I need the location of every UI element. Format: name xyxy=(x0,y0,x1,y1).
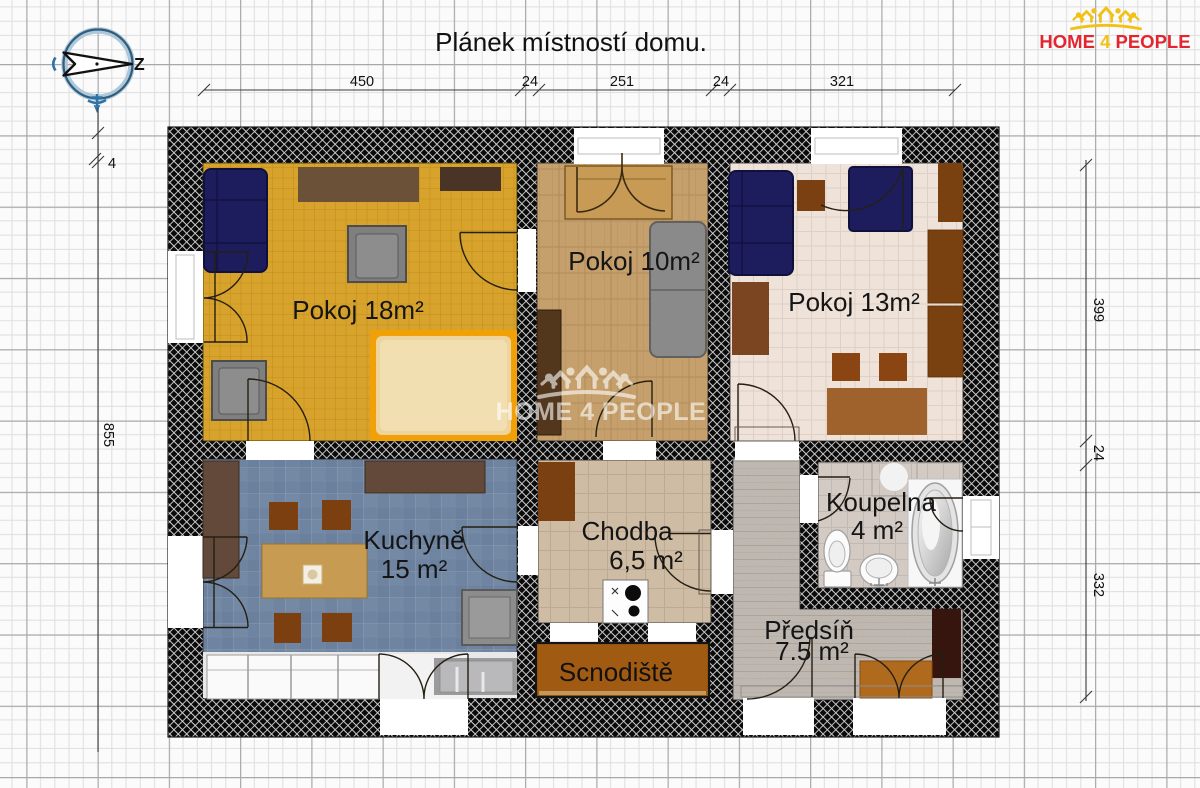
svg-text:24: 24 xyxy=(1090,445,1106,461)
svg-text:Koupelna: Koupelna xyxy=(826,487,936,517)
svg-text:Plánek místností domu.: Plánek místností domu. xyxy=(435,27,707,57)
svg-text:HOME 4 PEOPLE: HOME 4 PEOPLE xyxy=(1039,31,1190,52)
svg-text:Pokoj 13m²: Pokoj 13m² xyxy=(788,287,920,317)
svg-text:450: 450 xyxy=(350,74,374,90)
svg-text:24: 24 xyxy=(522,74,538,90)
svg-text:399: 399 xyxy=(1090,298,1106,322)
svg-text:Pokoj 18m²: Pokoj 18m² xyxy=(292,295,424,325)
svg-text:24: 24 xyxy=(713,74,729,90)
svg-text:6,5 m²: 6,5 m² xyxy=(609,545,683,575)
svg-text:4 m²: 4 m² xyxy=(851,515,903,545)
svg-text:Kuchyně: Kuchyně xyxy=(363,525,464,555)
svg-text:332: 332 xyxy=(1090,573,1106,597)
svg-text:Chodba: Chodba xyxy=(581,516,673,546)
svg-text:HOME 4 PEOPLE: HOME 4 PEOPLE xyxy=(496,398,707,426)
svg-text:Scnodiště: Scnodiště xyxy=(559,657,673,687)
svg-text:Pokoj 10m²: Pokoj 10m² xyxy=(568,246,700,276)
svg-text:15 m²: 15 m² xyxy=(381,554,448,584)
svg-text:7.5 m²: 7.5 m² xyxy=(775,636,849,666)
svg-text:855: 855 xyxy=(100,423,116,447)
svg-text:Z: Z xyxy=(134,54,145,74)
svg-text:321: 321 xyxy=(830,74,854,90)
svg-text:251: 251 xyxy=(610,74,634,90)
svg-text:4: 4 xyxy=(108,156,116,172)
